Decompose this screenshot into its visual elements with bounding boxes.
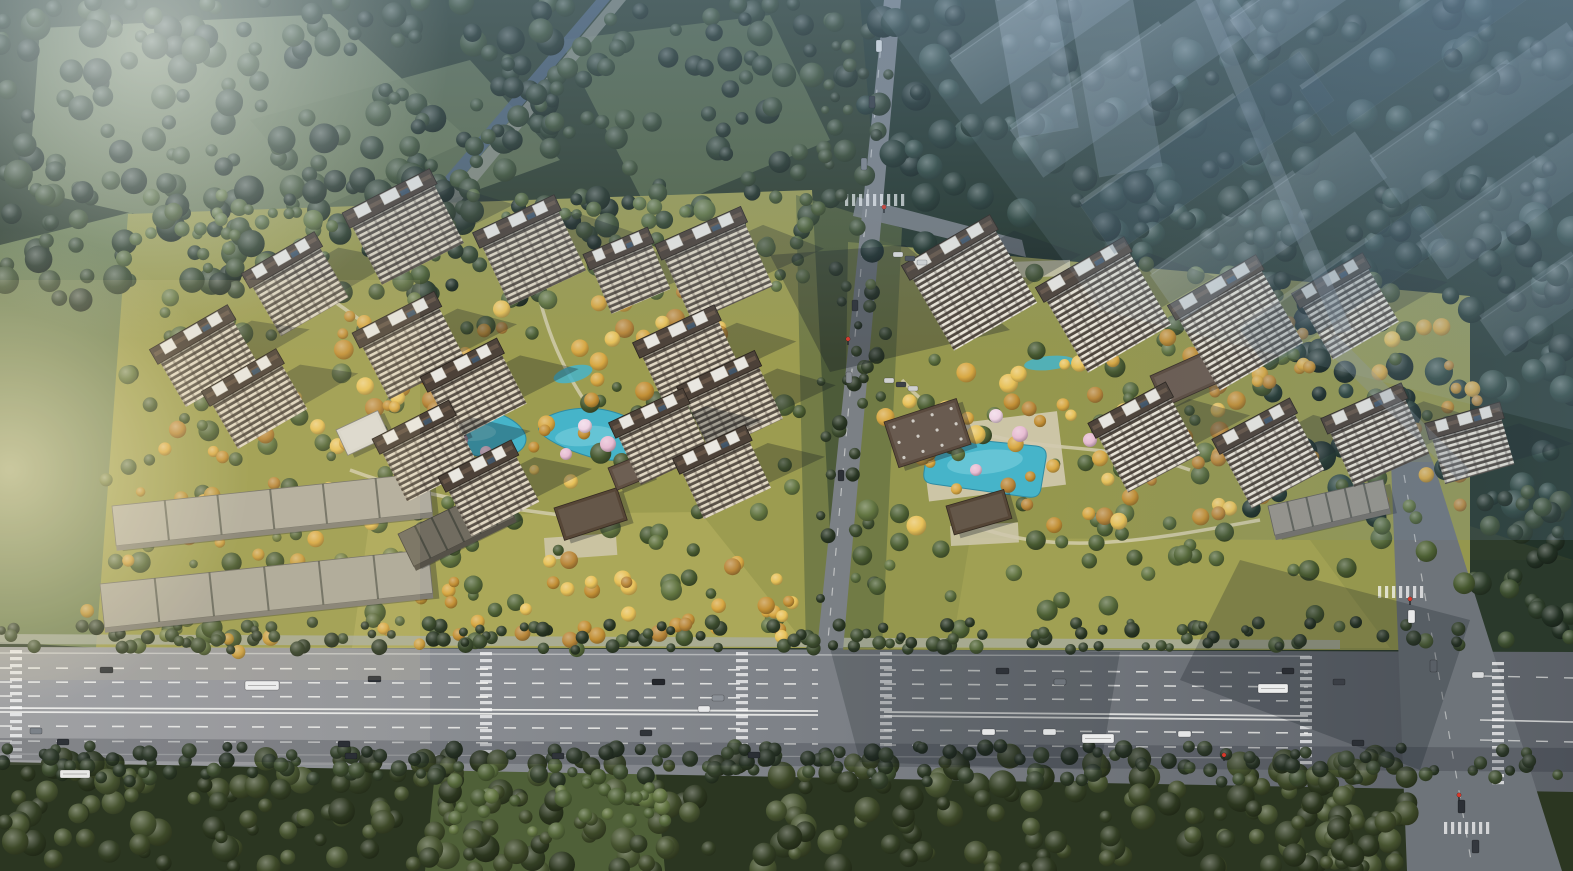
car [1458,800,1465,813]
signal-light [1222,753,1226,757]
car [896,382,906,387]
rendering-canvas [0,0,1573,871]
car [712,695,724,701]
blossom-tree [989,409,1003,423]
car [1054,679,1066,685]
car [1430,660,1437,672]
car [652,679,665,685]
signal-light [1457,793,1461,797]
car [552,753,564,759]
aerial-site-rendering [0,0,1573,871]
signal-light [1408,597,1412,601]
car [1352,740,1364,746]
car [345,753,357,759]
car [698,706,710,712]
car [1408,610,1415,623]
car [30,728,42,734]
blossom-tree [600,436,616,452]
blossom-tree [578,419,592,433]
car [1178,731,1191,737]
car [1282,668,1294,674]
blossom-tree [1012,426,1028,442]
car [838,470,844,481]
car [640,730,652,736]
car [748,752,760,758]
blossom-tree [560,448,572,460]
car [846,372,852,383]
car [57,739,69,745]
car [1333,679,1345,685]
car [982,729,995,735]
car [338,741,350,747]
car [908,386,918,391]
car [884,378,894,383]
blossom-tree [970,464,982,476]
car [1472,840,1479,853]
car [1472,672,1484,678]
car [1043,729,1056,735]
car [996,668,1009,674]
